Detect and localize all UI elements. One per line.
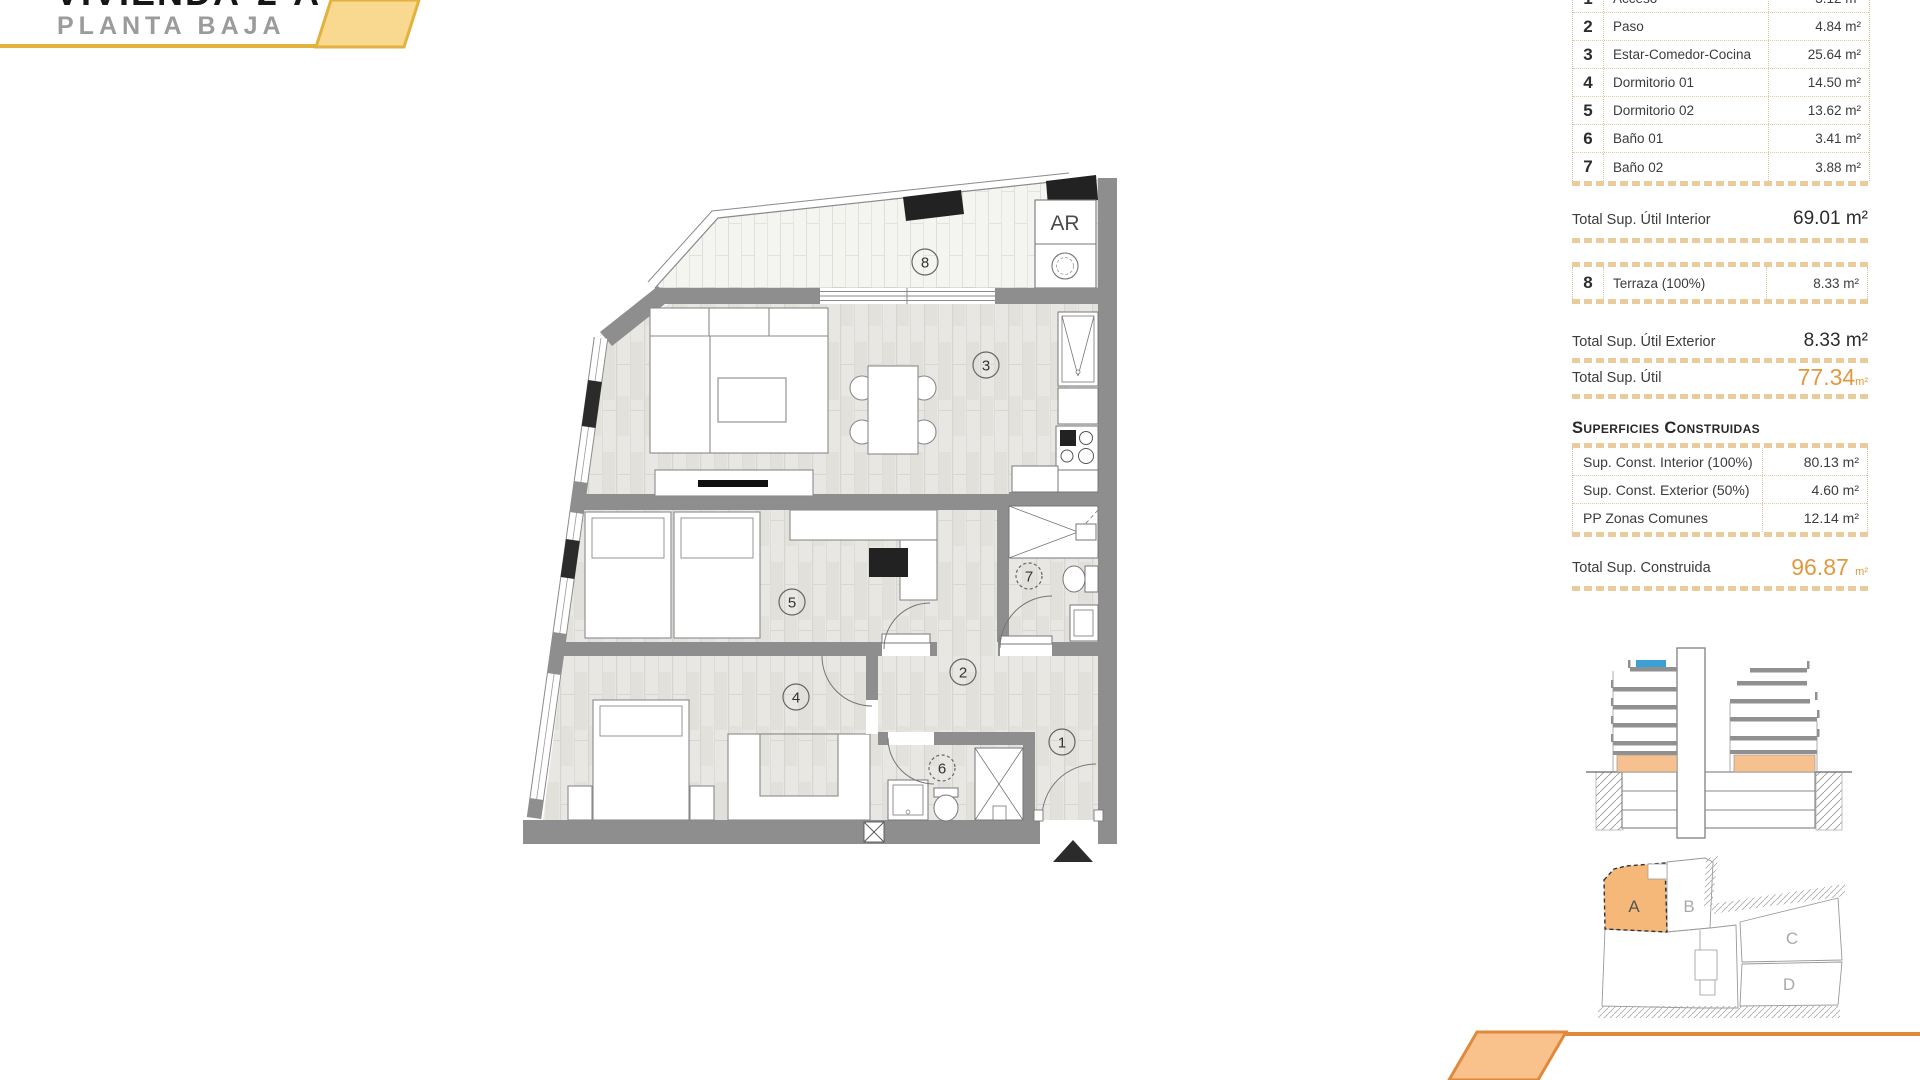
ground-floor-highlight [1734,755,1815,772]
counter [1058,388,1098,424]
ar-label: AR [1050,212,1079,235]
svg-text:1: 1 [1058,735,1066,752]
laundry-closet: AR [1035,200,1096,288]
site-label-d: D [1783,975,1795,994]
basement [1622,772,1815,828]
site-label-b: B [1683,897,1694,916]
svg-text:7: 7 [1025,569,1033,586]
shower [975,748,1023,820]
elevator-core [1677,648,1705,838]
section-right-tower [1730,661,1820,772]
nightstand [690,786,714,820]
footer-ribbon [1449,1032,1920,1080]
facade-pillar [589,381,595,427]
site-lower-block [1602,925,1738,1008]
dining-table [868,366,918,454]
site-key-plan: A B C D [1598,856,1845,1018]
drawing-canvas: AR [0,0,1920,1080]
site-label-c: C [1786,929,1798,948]
wall-vent [864,822,884,842]
site-hatch-b [1704,856,1718,906]
svg-text:2: 2 [959,665,967,682]
ground-floor-highlight [1617,755,1677,772]
building-section [1586,648,1852,838]
header-ribbon [0,0,419,47]
site-label-a: A [1628,897,1640,916]
sink [888,780,928,820]
svg-text:4: 4 [792,690,800,707]
toilet [934,788,958,821]
cooktop [1056,426,1098,470]
nightstand [568,786,592,820]
washing-machine-icon [1052,253,1078,279]
floor-plan: AR [523,173,1117,862]
tv-icon [869,548,908,577]
svg-text:6: 6 [938,761,946,778]
pool-icon [1636,660,1666,667]
coffee-table [718,378,786,422]
svg-text:5: 5 [788,595,796,612]
sliding-door [820,288,995,304]
terrace: AR [648,173,1098,288]
site-hatch-bottom [1598,1006,1840,1018]
toilet [1063,566,1098,592]
section-left-tower [1611,660,1677,772]
counter [1012,466,1058,492]
svg-text:3: 3 [982,358,990,375]
svg-text:8: 8 [921,255,929,272]
counter [1058,470,1098,492]
facade-pillar [568,540,573,578]
tv-icon [698,480,768,487]
closet [790,510,937,540]
sink [1070,605,1098,641]
